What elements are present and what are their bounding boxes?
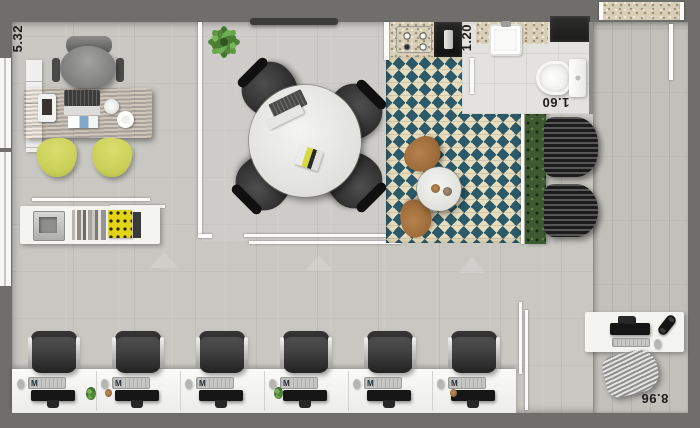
window [0, 58, 11, 148]
glass-door-panel [244, 234, 394, 237]
entrance-door [669, 24, 673, 80]
office-chair-armrest [116, 58, 124, 82]
keyboard-logo: M [199, 378, 206, 389]
keyboard: M [196, 377, 234, 389]
task-chair [115, 331, 161, 373]
kitchen-wall-jamb [384, 22, 389, 60]
monitor [31, 390, 75, 401]
glass-wall-corner [198, 234, 212, 238]
window [0, 152, 11, 286]
task-chair [199, 331, 245, 373]
keyboard-logo: M [115, 378, 122, 389]
mouse [185, 379, 192, 389]
monitor [115, 390, 159, 401]
workstation: M [348, 330, 432, 414]
keyboard: M [28, 377, 66, 389]
task-chair [367, 331, 413, 373]
toilet-tank [569, 59, 586, 97]
desk-cup [105, 389, 112, 397]
keyboard: M [112, 377, 150, 389]
desk-plant [274, 387, 283, 399]
glass-partition [519, 302, 522, 374]
workstation: M [96, 330, 180, 414]
keyboard: M [448, 377, 486, 389]
desk-phone-screen [42, 99, 52, 115]
toilet-bowl [536, 61, 572, 95]
floor-arrow [305, 255, 333, 271]
glass-door-panel [249, 241, 401, 244]
desk-laptop-base [64, 106, 100, 115]
mouse [437, 379, 444, 389]
meeting-wall-shelf [250, 18, 338, 25]
keyboard-logo: M [31, 378, 38, 389]
keyboard-logo: M [283, 378, 290, 389]
glass-partition [525, 310, 528, 410]
keyboard-logo: M [367, 378, 374, 389]
entrance-mat [603, 2, 680, 20]
coffee-cup [443, 187, 452, 196]
cooktop [396, 26, 432, 53]
reception-mouse [654, 339, 661, 349]
monitor [451, 390, 495, 401]
floor-arrow [458, 257, 486, 273]
reception-keyboard [612, 338, 650, 347]
floor-arrow [150, 252, 178, 268]
workstation: M [12, 330, 96, 414]
workstation: M [180, 330, 264, 414]
desk-plant [86, 387, 96, 400]
bottle [444, 30, 453, 49]
desk-magazine [68, 116, 98, 128]
keyboard: M [280, 377, 318, 389]
desk-laptop [64, 90, 100, 106]
desk-cup [450, 389, 457, 397]
printer-tray [39, 217, 57, 233]
saucer [117, 111, 134, 128]
monitor [283, 390, 327, 401]
hedge [525, 111, 546, 244]
mouse [353, 379, 360, 389]
potted-plant [201, 21, 247, 63]
bathroom-niche [550, 16, 590, 42]
mouse [17, 379, 24, 389]
coffee-cup [431, 184, 440, 193]
workstation: M [264, 330, 348, 414]
dim-label-overall-depth: 8.96 [641, 391, 687, 405]
workstation: M [432, 330, 516, 414]
task-chair [451, 331, 497, 373]
books-row [72, 210, 106, 240]
monitor [367, 390, 411, 401]
yellow-book [108, 210, 132, 238]
bathroom-sink [489, 24, 522, 56]
bathroom-wall-seam [589, 22, 593, 114]
reception-desk [585, 312, 684, 352]
lounge-chair [544, 117, 598, 177]
task-chair [283, 331, 329, 373]
dim-label-bathroom-length: 1.60 [542, 95, 586, 109]
dim-label-bathroom-width: 1.20 [459, 24, 477, 66]
dark-book [133, 212, 141, 238]
coffee-mug [104, 99, 119, 114]
door-jamb [680, 2, 684, 20]
mouse [101, 379, 108, 389]
hedge-glass-panel [521, 111, 524, 244]
office-chair-armrest [52, 58, 60, 82]
office-chair [60, 46, 116, 90]
monitor [199, 390, 243, 401]
shelf-rail [32, 198, 150, 201]
telephone [656, 313, 677, 336]
lounge-chair [544, 184, 598, 237]
keyboard-logo: M [451, 378, 458, 389]
keyboard: M [364, 377, 402, 389]
task-chair [31, 331, 77, 373]
reception-monitor [610, 323, 650, 335]
floor-plan: 5.32 [0, 0, 700, 428]
